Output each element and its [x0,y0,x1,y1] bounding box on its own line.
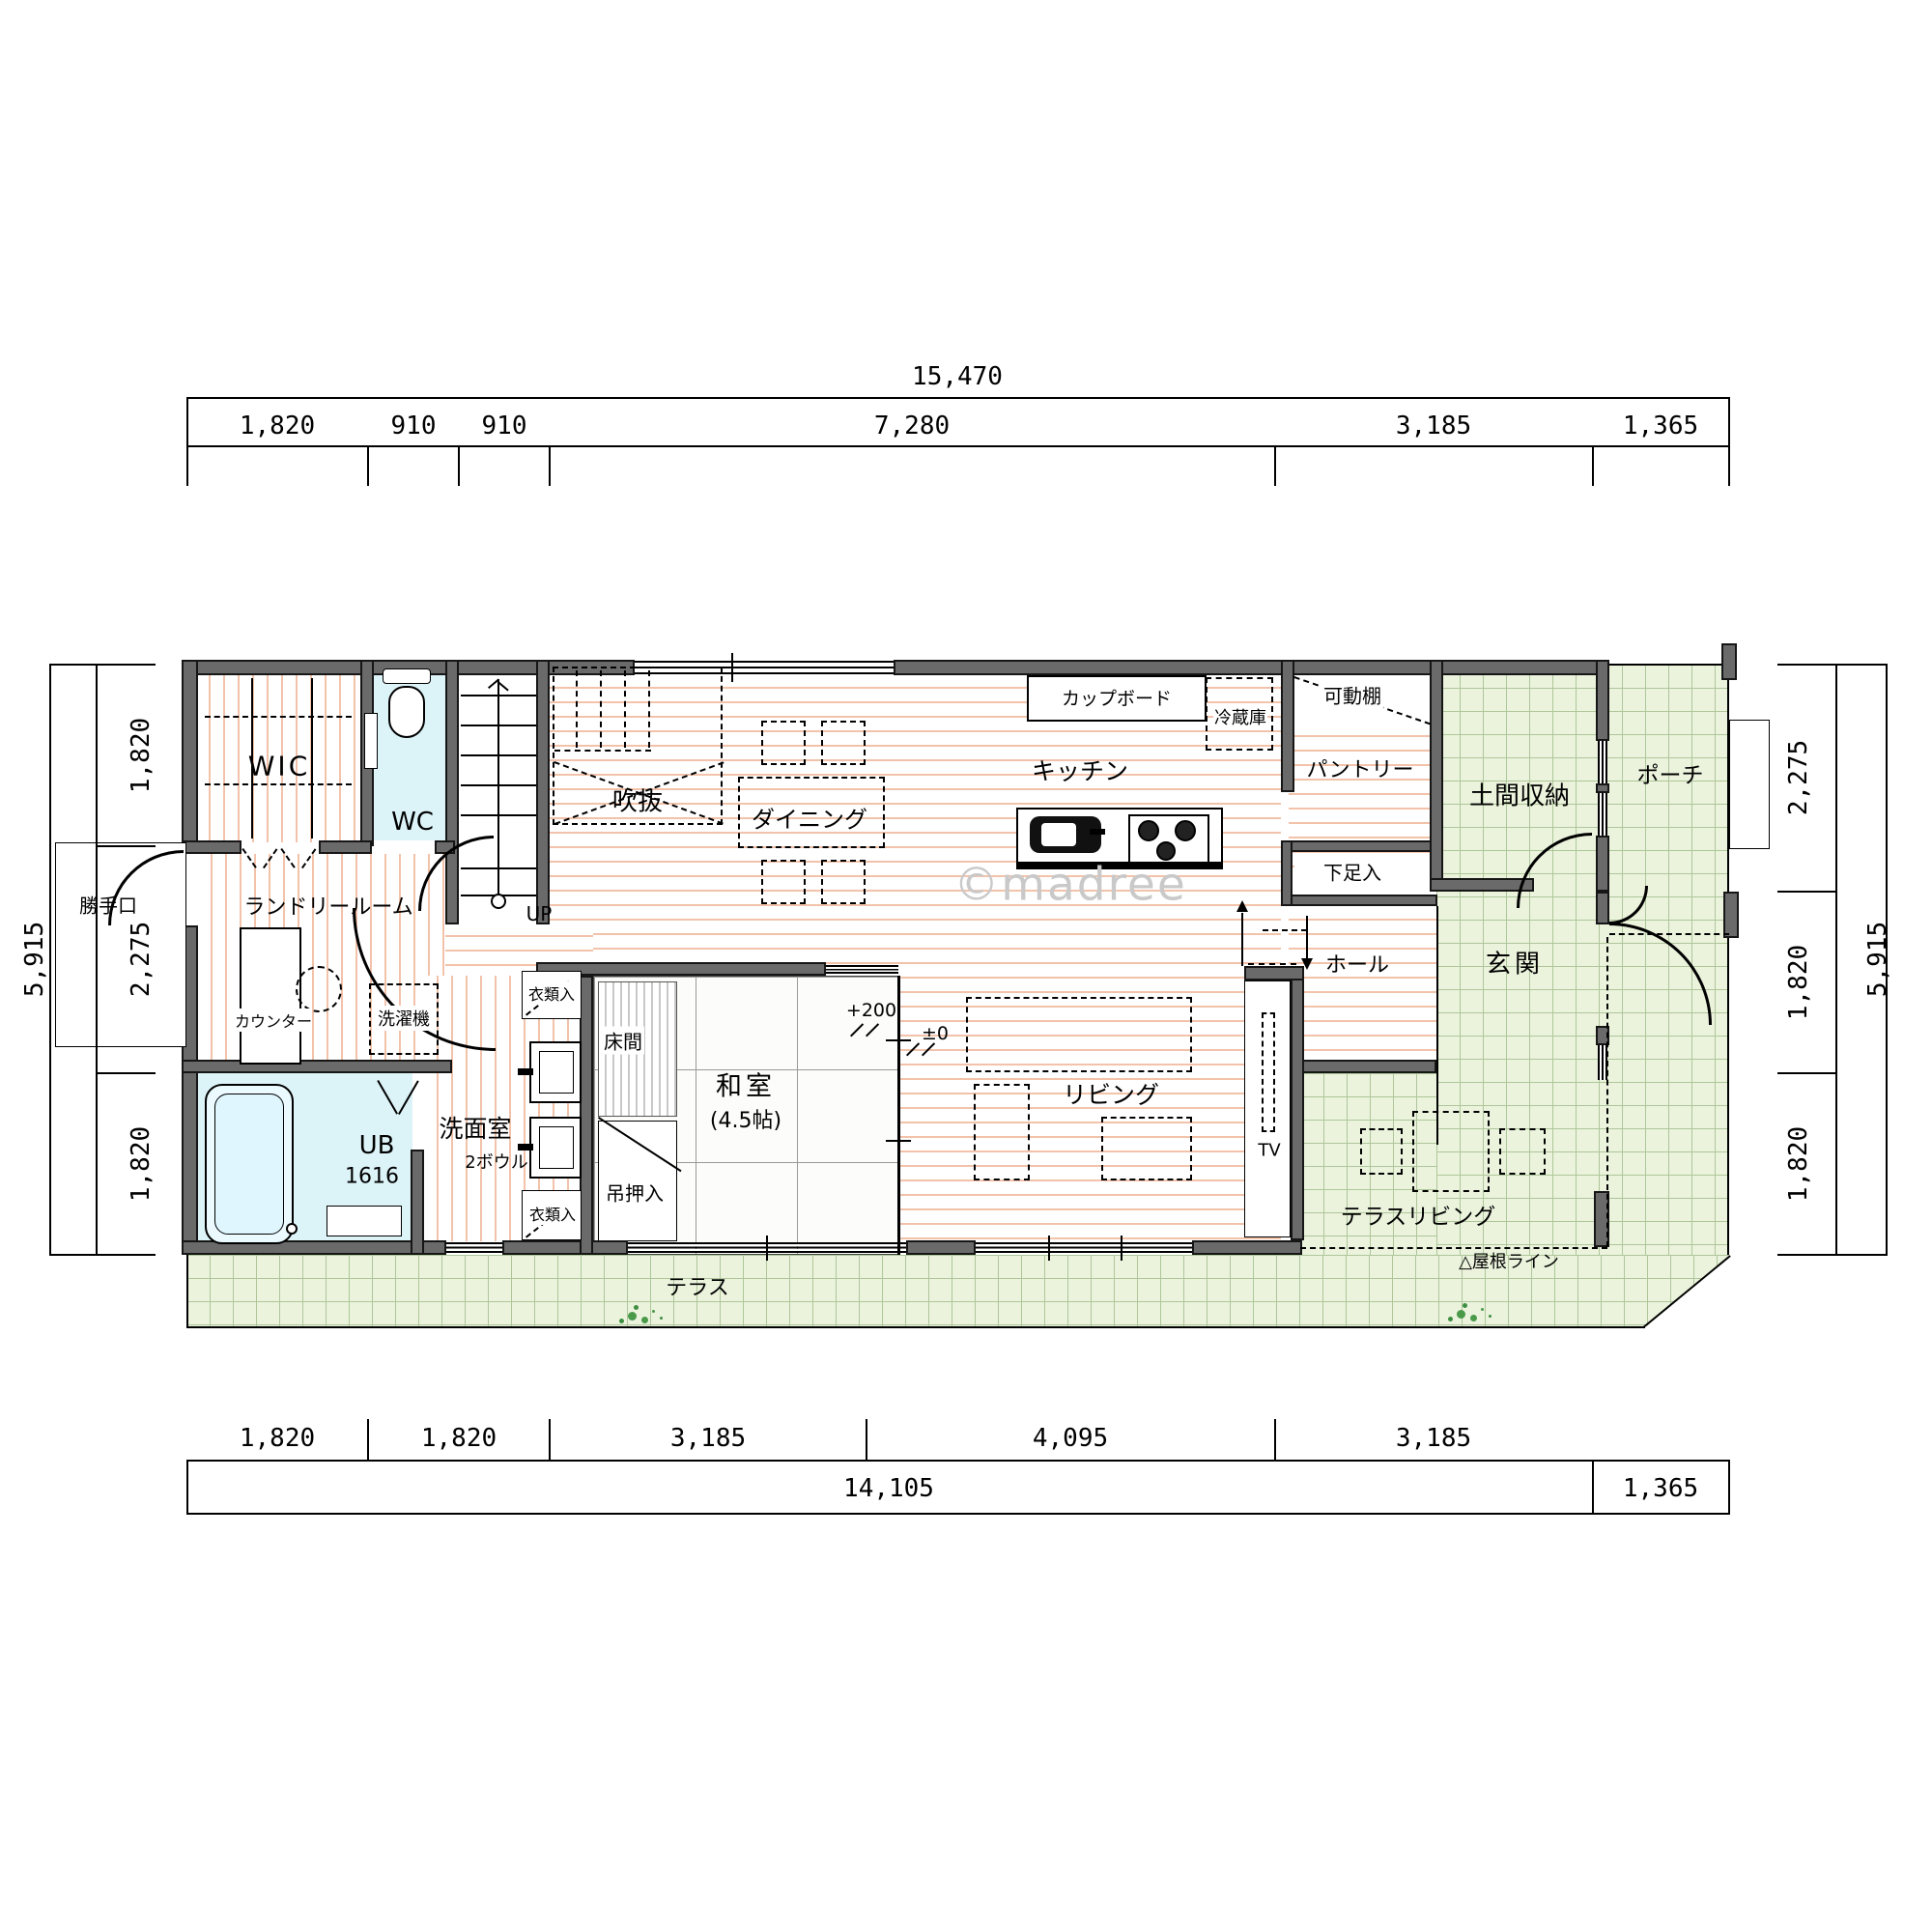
wall [1281,660,1294,792]
room-label-washitsu: 和室 [716,1065,776,1103]
wall [319,840,372,854]
genkan-step-line [1436,906,1438,1145]
dim-tick [49,664,156,666]
plant [1457,1310,1465,1319]
wall [182,840,241,854]
wall [182,1060,452,1073]
dim-bottom-total: 14,105 [843,1474,934,1503]
room-label-laundry: ランドリールーム [243,890,412,921]
dim-line [49,665,51,1255]
dim-bottom-seg4: 3,185 [1396,1424,1471,1453]
wall [1244,966,1304,980]
dim-tick [1777,664,1888,666]
counter-label: カウンター [235,1009,312,1032]
room-label-genkan: 玄関 [1486,945,1544,980]
dim-top-seg3: 7,280 [874,412,950,440]
room-label-tokonoma: 床間 [602,1027,644,1055]
living-table [1101,1117,1192,1180]
island-sink-basin [1041,823,1076,846]
dim-tick [1777,1254,1888,1256]
dim-tick [367,445,369,486]
dim-right-seg2: 1,820 [1784,1126,1813,1202]
edge-arrow [1236,900,1248,912]
wall [1596,892,1609,924]
wall [1430,660,1443,892]
shelf-label: 可動棚 [1321,681,1383,709]
wall [1281,840,1293,906]
wall [182,660,198,853]
dim-left-total: 5,915 [20,922,49,997]
window [446,1242,502,1253]
clothes-upper-label: 衣類入 [528,981,575,1005]
window-mullion [766,1236,768,1261]
terrace-chair [1360,1128,1403,1175]
floor-plan: WIC WC UP 吹抜 ダイニング キッチン パントリー 土間収納 ポーチ 玄… [0,0,1932,1932]
dim-tick [1777,891,1837,893]
stairs-up-label: UP [526,902,553,925]
room-label-porch: ポーチ [1637,756,1704,789]
wall [894,660,1608,675]
dim-line [1886,665,1888,1255]
terrace-edge [186,1255,188,1328]
bath-counter [327,1206,402,1236]
dim-left-seg0: 1,820 [127,718,156,793]
void-tread [648,670,650,748]
room-label-bath: UB [359,1131,395,1160]
island-faucet [1090,829,1105,835]
wall [906,1240,976,1255]
toilet-bowl [388,686,425,738]
wall [1281,840,1437,852]
dim-top-seg0: 1,820 [240,412,315,440]
wic-hanger-row [205,783,352,785]
terrace-chair [1499,1128,1546,1175]
wall [1596,836,1609,892]
window-mullion [731,653,733,682]
room-label-void: 吹抜 [612,782,663,818]
void-tread [600,670,602,748]
room-label-wc: WC [391,808,434,837]
edge-arrow [1301,958,1313,970]
dim-top-seg2: 910 [482,412,527,440]
dim-tick [367,1419,369,1462]
dim-line [1592,1460,1594,1515]
dim-right-total: 5,915 [1863,922,1892,997]
dim-top-seg4: 3,185 [1396,412,1471,440]
room-label-washitsu-size: (4.5帖) [710,1103,781,1134]
dim-tick [1777,1072,1837,1074]
room-label-living: リビング [1063,1076,1159,1111]
step-tick [886,1039,911,1041]
tv-label: TV [1258,1141,1280,1161]
dim-tick [1592,445,1594,486]
terrace-table [1412,1111,1490,1192]
wc-cabinet [364,713,378,769]
roof-line [1300,1247,1607,1249]
level-up-label: +200 [846,1000,896,1021]
wall [1192,1240,1302,1255]
burner [1175,820,1196,841]
level-zero-label: ±0 [922,1023,949,1044]
dim-line [186,397,188,486]
watermark: ©madree [953,859,1187,912]
room-label-dining: ダイニング [752,801,867,835]
sofa-arm [974,1084,1030,1180]
dim-line [186,1460,1730,1462]
room-label-oshiire: 吊押入 [606,1179,664,1207]
edge-marker [1306,916,1308,959]
room-label-washroom: 洗面室 [439,1110,511,1145]
wic-pipe [311,678,313,838]
backdoor-label: 勝手口 [79,891,137,919]
dim-tick [1274,445,1276,486]
dim-line [1728,397,1730,486]
washitsu-step-line [897,976,900,1255]
dim-tick [866,1419,867,1462]
terrace-edge [186,1326,1645,1328]
dim-bottom-offset: 1,365 [1623,1474,1698,1503]
dim-bottom-seg1: 1,820 [421,1424,497,1453]
dim-right-seg0: 2,275 [1784,740,1813,815]
tv-unit [1262,1012,1275,1132]
porch-step [1729,720,1770,849]
void-tread [624,670,626,748]
roof-line [1609,933,1729,935]
dim-top-total: 15,470 [912,362,1003,391]
dim-bottom-seg2: 3,185 [670,1424,746,1453]
sink-faucet [518,1068,533,1075]
fridge-label: 冷蔵庫 [1213,704,1267,729]
edge-dashline [1248,963,1296,965]
dim-left-seg2: 1,820 [127,1126,156,1202]
room-label-hall: ホール [1325,948,1389,979]
window-mullion [1048,1236,1050,1261]
cupboard-label: カップボード [1062,685,1172,711]
edge-dashline [1263,929,1307,931]
window [1598,793,1607,836]
door-swing [418,836,494,911]
plant [628,1312,637,1321]
roofline-label: △屋根ライン [1459,1248,1559,1273]
wall [1291,976,1304,1240]
wall [1289,1060,1436,1073]
washitsu-opening [826,965,898,974]
room-label-pantry: パントリー [1306,753,1413,783]
toilet-tank [383,668,431,684]
window-mullion [1121,1236,1122,1261]
dining-chair [761,860,806,904]
dim-tick [458,445,460,486]
edge-marker [1241,913,1243,966]
wall [502,1240,628,1255]
dim-tick [96,845,156,847]
dim-bottom-seg0: 1,820 [240,1424,315,1453]
wall [536,660,550,924]
dim-line [1835,665,1837,1255]
laundry-basket [296,966,342,1012]
dim-bottom-seg3: 4,095 [1033,1424,1108,1453]
room-label-terrace: テラス [666,1270,729,1301]
wall [1596,783,1609,793]
dim-tick [549,445,551,486]
void-line [554,750,651,752]
shoebox-label: 下足入 [1323,858,1381,886]
dim-tick [49,1254,156,1256]
post [1723,892,1739,938]
room-label-wic: WIC [248,751,311,782]
stair-rail [497,679,499,901]
dim-right-seg1: 1,820 [1784,945,1813,1020]
dim-tick [1274,1419,1276,1462]
bath-drain [286,1223,298,1235]
sink-basin [539,1126,574,1169]
dim-tick [549,1419,551,1462]
wic-hanger-row [205,716,352,718]
hall-floor [1289,906,1436,1060]
dim-line [186,1513,1730,1515]
dining-chair [821,860,866,904]
dim-line [96,665,98,1255]
wall [1596,660,1609,741]
dim-left-seg1: 2,275 [127,922,156,997]
dim-line [1728,1460,1730,1515]
sink-basin [539,1051,574,1094]
clothes-lower-label: 衣類入 [529,1202,576,1225]
washroom-bowls-label: 2ボウル [465,1149,527,1174]
sofa [966,997,1192,1072]
room-label-bath-size: 1616 [345,1165,399,1189]
dim-line [186,1460,188,1515]
wall [411,1150,424,1255]
bathtub-inner [214,1094,284,1235]
wall [1281,895,1437,906]
step-tick [886,1140,911,1142]
room-label-terrace-living: テラスリビング [1341,1198,1496,1231]
window [1598,741,1607,783]
window [976,1242,1192,1253]
dim-line [186,445,1730,447]
room-label-kitchen: キッチン [1032,753,1128,787]
dim-tick [96,1072,156,1074]
dim-line [186,397,1730,399]
post [1721,643,1737,680]
washer-label: 洗濯機 [378,1006,430,1031]
porch-edge [1609,664,1727,666]
dining-chair [761,721,806,765]
dim-top-seg5: 1,365 [1623,412,1698,440]
wall [580,976,593,1255]
dim-top-seg1: 910 [391,412,437,440]
laundry-counter [240,927,301,1065]
room-label-doma: 土間収納 [1469,777,1570,812]
dining-chair [821,721,866,765]
void-tread [576,670,578,748]
burner [1138,820,1159,841]
roof-line [1606,937,1608,1247]
